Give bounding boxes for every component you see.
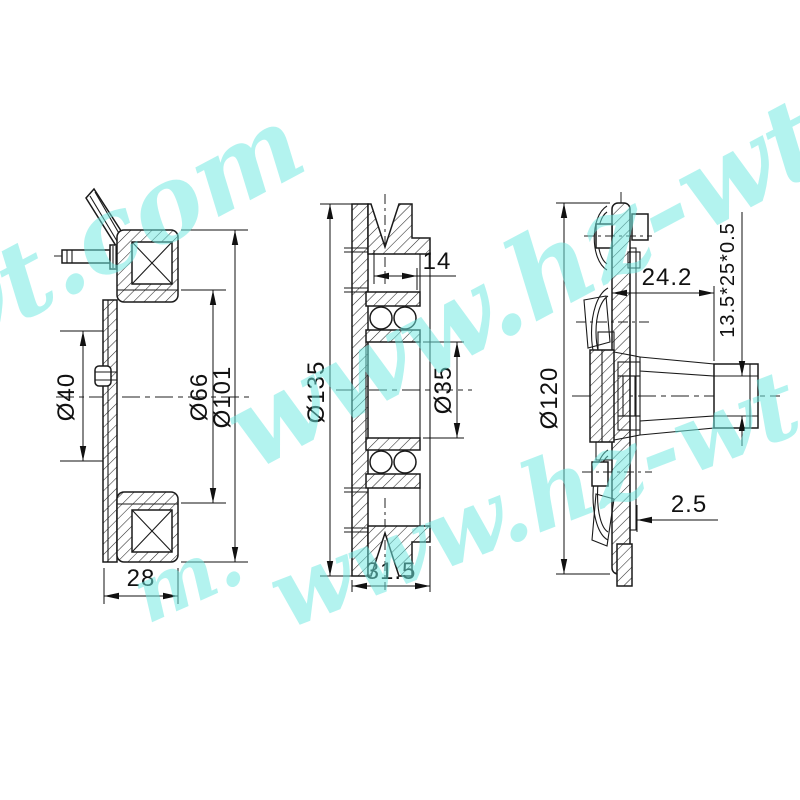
mounting-tab xyxy=(95,366,111,386)
disc-bottom-lug xyxy=(617,544,632,586)
dim-label-d120: Ø120 xyxy=(536,367,563,430)
dim-label-d40: Ø40 xyxy=(53,373,80,421)
drawing-page: Ø40 Ø66 Ø101 28 xyxy=(0,0,800,800)
technical-drawing-canvas: Ø40 Ø66 Ø101 28 xyxy=(0,0,800,800)
bearing-ball xyxy=(370,451,392,473)
bearing-ball xyxy=(394,451,416,473)
mounting-plate xyxy=(103,300,117,562)
